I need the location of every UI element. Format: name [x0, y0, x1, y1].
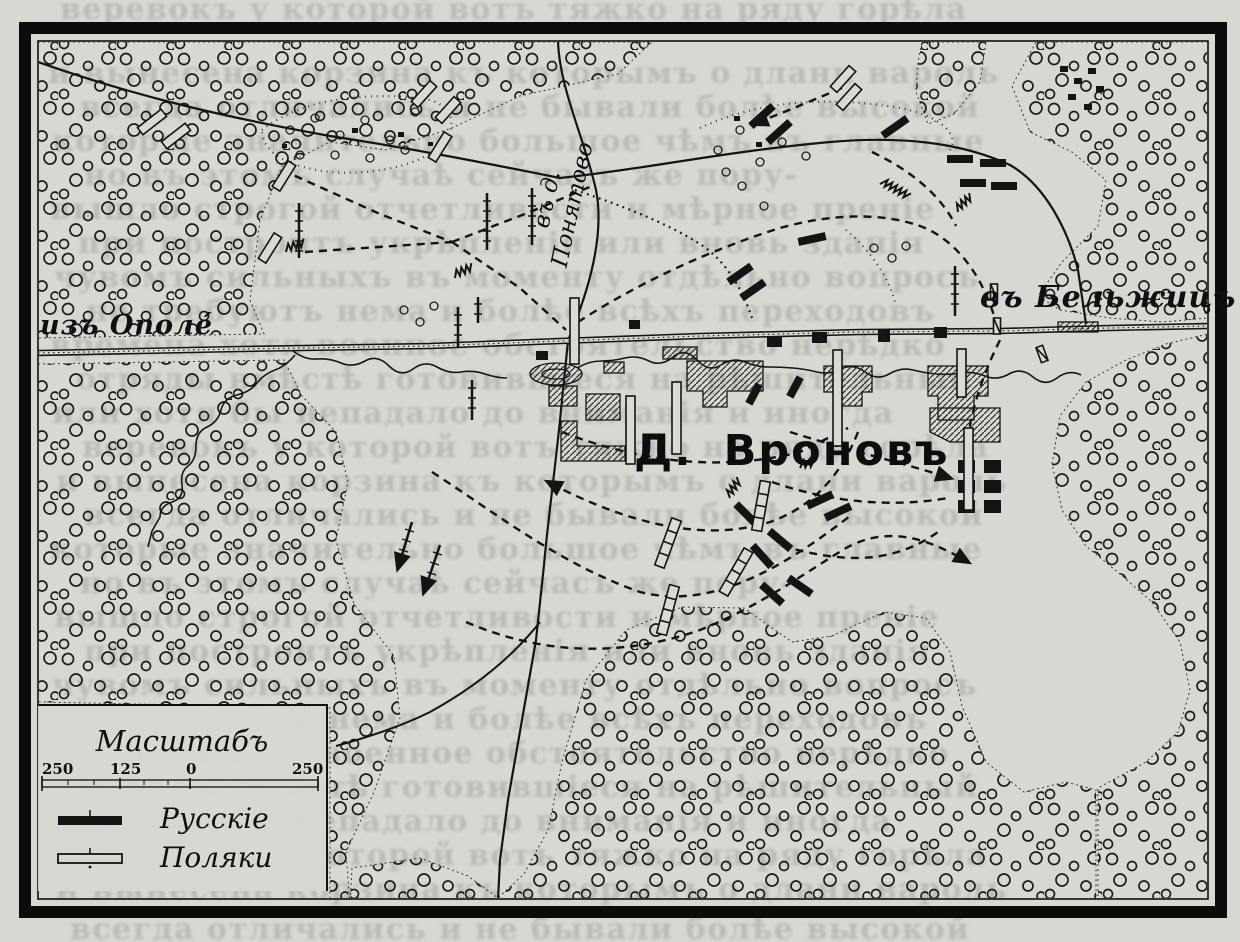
- forest-bottom: [350, 607, 1096, 905]
- tracks-dashed: [282, 88, 1000, 649]
- poles-symbol: [52, 847, 132, 869]
- legend-entry-label: Поляки: [160, 841, 272, 874]
- legend-box: Масштабъ 250 125 0 250 Русскіе: [38, 704, 328, 891]
- legend-entry-poles: Поляки: [52, 841, 326, 874]
- village-houses: [536, 66, 1104, 360]
- manor-l-building: [561, 421, 625, 461]
- label-village-vronov: Д. Вроновъ: [634, 426, 949, 476]
- forest-patch-north: [916, 42, 986, 124]
- legend-entry-label: Русскіе: [160, 802, 269, 835]
- bridge-hatch: [1058, 322, 1098, 332]
- russian-positions: [726, 103, 1017, 606]
- map-page: веревокъ у которой вотъ тяжко на ряду го…: [0, 0, 1240, 942]
- pond: [530, 363, 582, 385]
- russians-symbol: [52, 809, 132, 829]
- tracks-dotted: [575, 190, 752, 318]
- label-road-from-opole: изъ Ополе́: [40, 310, 213, 341]
- scale-bar: 250 125 0 250: [40, 762, 324, 796]
- scale-tick-label: 0: [186, 762, 196, 778]
- scale-tick-label: 250: [292, 762, 323, 778]
- scale-tick-label: 125: [110, 762, 141, 778]
- scale-tick-label: 250: [42, 762, 73, 778]
- legend-title: Масштабъ: [38, 724, 326, 758]
- legend-entry-russians: Русскіе: [52, 802, 326, 835]
- label-road-to-belzhitsy: въ Бельжицъ: [980, 280, 1236, 315]
